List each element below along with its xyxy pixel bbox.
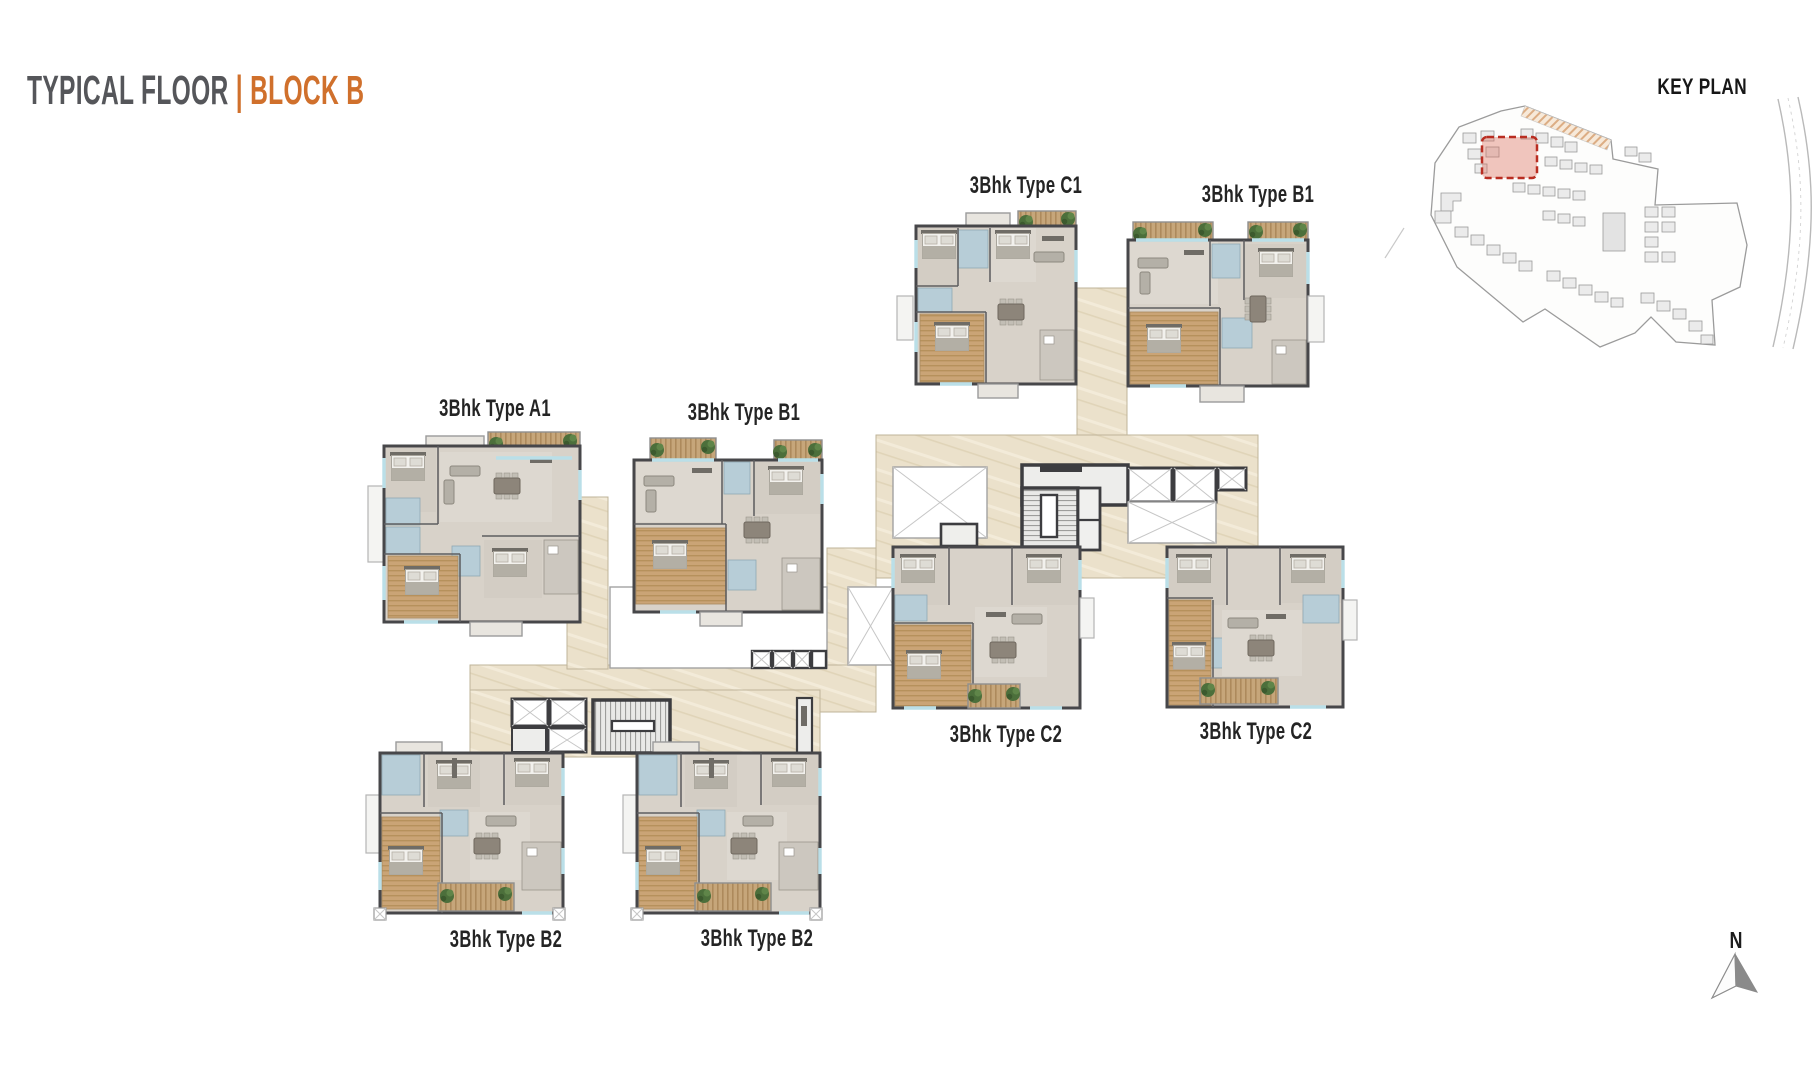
unit-label-b2-right: 3Bhk Type B2	[681, 925, 833, 953]
unit-3bhk-type-c1	[897, 211, 1076, 398]
unit-label-c1: 3Bhk Type C1	[950, 172, 1102, 200]
unit-label-b1-left: 3Bhk Type B1	[668, 399, 820, 427]
unit-3bhk-type-b2-right	[623, 742, 822, 920]
unit-label-b2-left: 3Bhk Type B2	[430, 926, 582, 954]
key-plan-road	[1773, 97, 1811, 349]
key-plan-map	[1395, 95, 1820, 360]
page-root: { "header": { "title_primary": "TYPICAL …	[0, 0, 1820, 1080]
service-boxes	[752, 651, 826, 668]
key-plan-highlight	[1482, 137, 1537, 178]
unit-3bhk-type-a1	[368, 432, 580, 636]
central-core	[1022, 465, 1246, 550]
unit-3bhk-type-b1-top	[1128, 222, 1324, 402]
unit-label-c2-left: 3Bhk Type C2	[930, 721, 1082, 749]
unit-label-a1: 3Bhk Type A1	[419, 395, 571, 423]
unit-label-c2-right: 3Bhk Type C2	[1180, 718, 1332, 746]
unit-3bhk-type-c2-left	[893, 547, 1094, 708]
unit-3bhk-type-c2-right	[1167, 547, 1357, 707]
unit-3bhk-type-b1-left	[634, 438, 822, 626]
north-arrow-icon	[1700, 948, 1770, 1004]
unit-label-b1-top: 3Bhk Type B1	[1182, 181, 1334, 209]
